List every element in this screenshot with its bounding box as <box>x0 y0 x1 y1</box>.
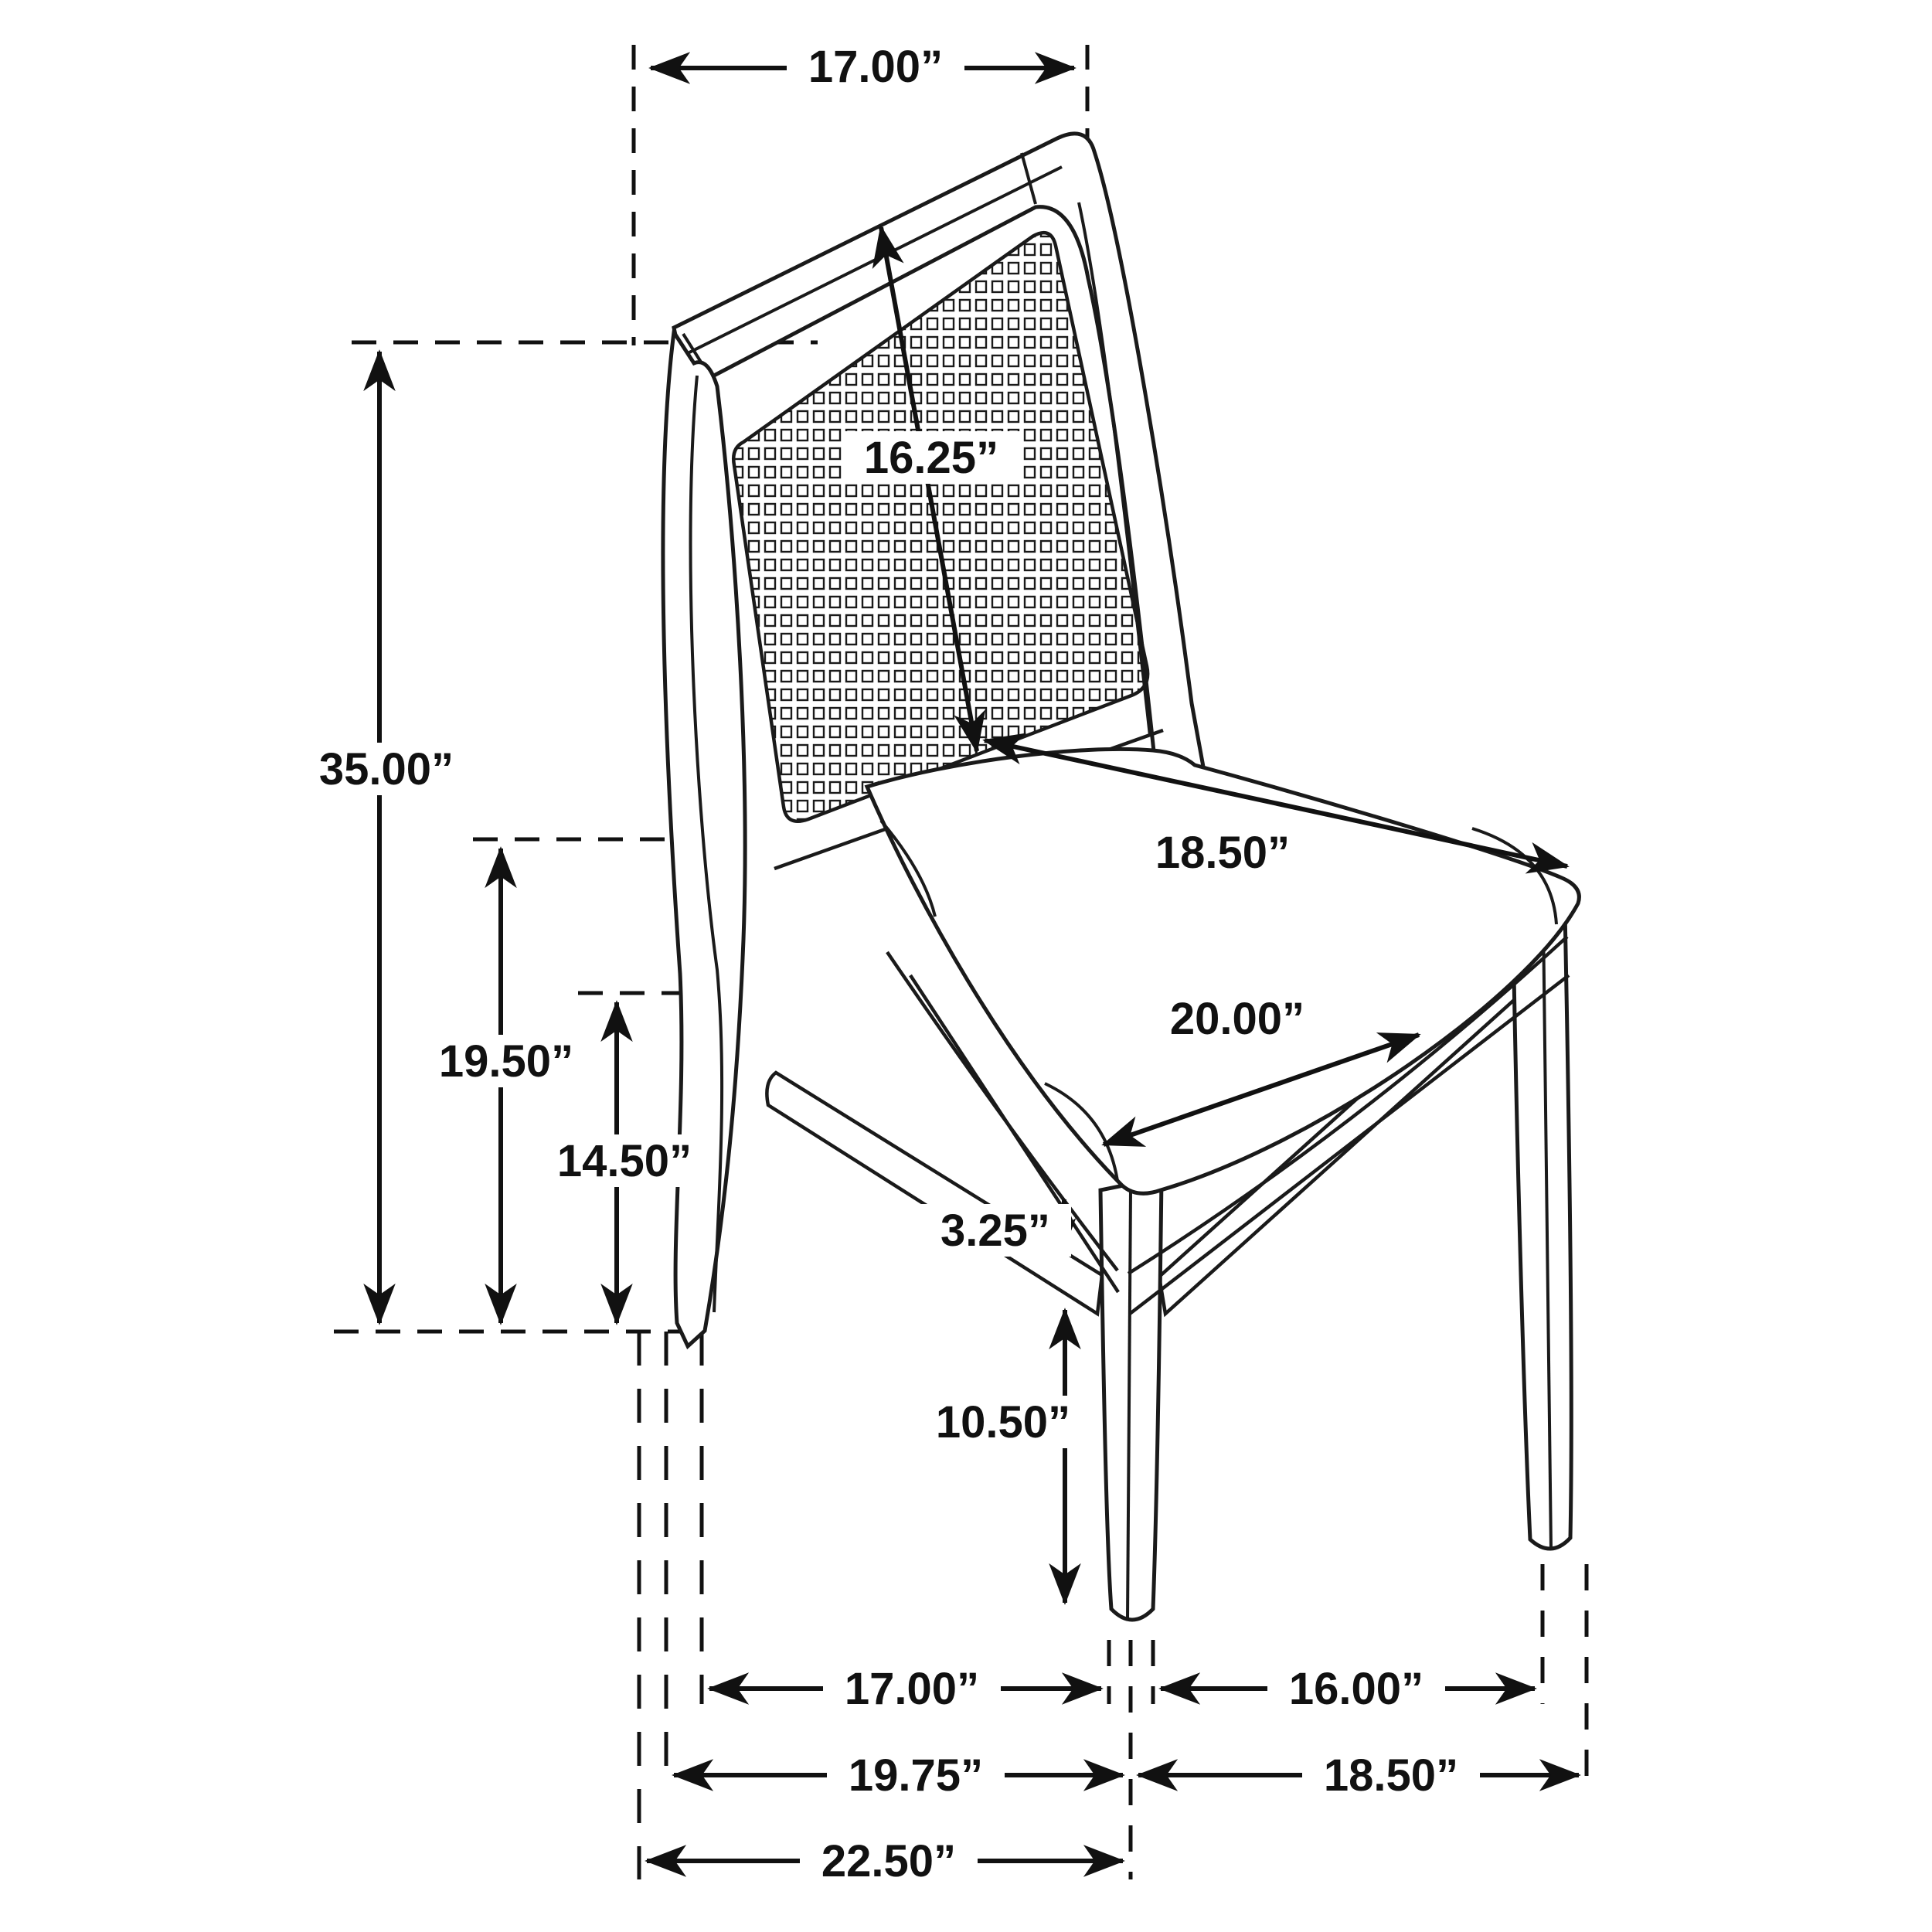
dimension-diagram: 17.00” 35.00” 19.50” 14.50” 16.25” 18.50… <box>0 0 1932 1932</box>
label-back-width: 17.00” <box>808 42 943 92</box>
label-seat-height: 19.50” <box>439 1036 573 1087</box>
label-seat-frame-height: 14.50” <box>557 1136 692 1186</box>
chair-diagram-svg: 17.00” 35.00” 19.50” 14.50” 16.25” 18.50… <box>0 0 1932 1932</box>
label-overall-height: 35.00” <box>319 744 454 794</box>
label-seat-depth: 18.50” <box>1155 828 1290 878</box>
chair-drawing <box>663 134 1579 1620</box>
label-floor-front-left: 17.00” <box>845 1664 979 1714</box>
label-floor-front-right: 16.00” <box>1289 1664 1423 1714</box>
seat-cushion <box>867 749 1579 1193</box>
label-overall-depth: 22.50” <box>821 1836 956 1886</box>
label-footprint-right: 18.50” <box>1324 1750 1458 1801</box>
label-seat-width: 20.00” <box>1170 994 1304 1044</box>
side-leg <box>1513 910 1571 1549</box>
label-back-panel-height: 16.25” <box>864 433 998 483</box>
label-apron-gap: 3.25” <box>940 1206 1050 1256</box>
label-footprint-left: 19.75” <box>849 1750 983 1801</box>
label-leg-height: 10.50” <box>936 1397 1070 1447</box>
